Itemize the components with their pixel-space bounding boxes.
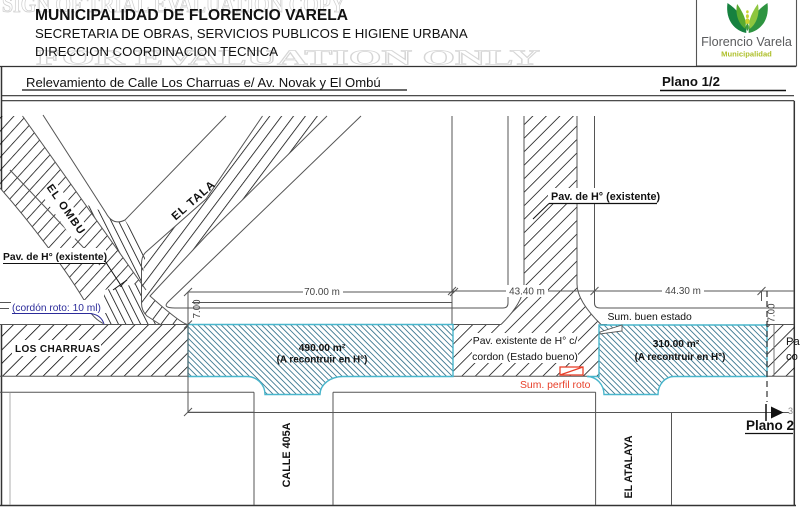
svg-text:310.00 m²: 310.00 m² (653, 339, 700, 350)
svg-text:70.00 m: 70.00 m (304, 287, 340, 298)
svg-text:co: co (786, 351, 798, 363)
svg-text:Florencio Varela: Florencio Varela (701, 35, 792, 49)
svg-text:7.00: 7.00 (192, 299, 203, 319)
svg-text:(A recontruir en H°): (A recontruir en H°) (277, 355, 368, 366)
svg-text:CALLE 405A: CALLE 405A (281, 422, 293, 487)
svg-text:Pa: Pa (786, 336, 800, 348)
svg-text:3: 3 (788, 406, 793, 416)
svg-text:Sum. perfil roto: Sum. perfil roto (520, 380, 591, 391)
svg-text:490.00 m²: 490.00 m² (299, 343, 346, 354)
svg-text:Relevamiento de Calle Los Char: Relevamiento de Calle Los Charruas e/ Av… (26, 75, 381, 90)
svg-text:EL ATALAYA: EL ATALAYA (623, 435, 635, 498)
svg-text:cordon (Estado bueno): cordon (Estado bueno) (472, 352, 578, 363)
svg-text:SECRETARIA DE OBRAS, SERVICIOS: SECRETARIA DE OBRAS, SERVICIOS PUBLICOS … (35, 26, 468, 41)
svg-text:(A recontruir en H°): (A recontruir en H°) (635, 352, 726, 363)
svg-text:44.30 m: 44.30 m (665, 286, 701, 297)
svg-text:Pav. de H° (existente): Pav. de H° (existente) (551, 191, 661, 203)
svg-text:7.00: 7.00 (767, 303, 778, 323)
svg-text:Pav. de H° (existente): Pav. de H° (existente) (3, 252, 107, 263)
svg-text:DIRECCION COORDINACION TECNICA: DIRECCION COORDINACION TECNICA (35, 44, 278, 59)
svg-text:(cordón roto: 10 ml): (cordón roto: 10 ml) (12, 303, 101, 314)
svg-text:Sum. buen estado: Sum. buen estado (608, 312, 693, 323)
svg-text:Plano 1/2: Plano 1/2 (662, 74, 720, 89)
svg-text:Municipalidad: Municipalidad (721, 50, 772, 59)
svg-text:43.40 m: 43.40 m (509, 287, 545, 298)
svg-text:LOS CHARRUAS: LOS CHARRUAS (15, 344, 100, 355)
svg-text:MUNICIPALIDAD DE FLORENCIO VAR: MUNICIPALIDAD DE FLORENCIO VARELA (35, 7, 348, 24)
svg-text:Plano 2: Plano 2 (746, 418, 794, 433)
svg-text:Pav. existente de H° c/: Pav. existente de H° c/ (473, 336, 578, 347)
